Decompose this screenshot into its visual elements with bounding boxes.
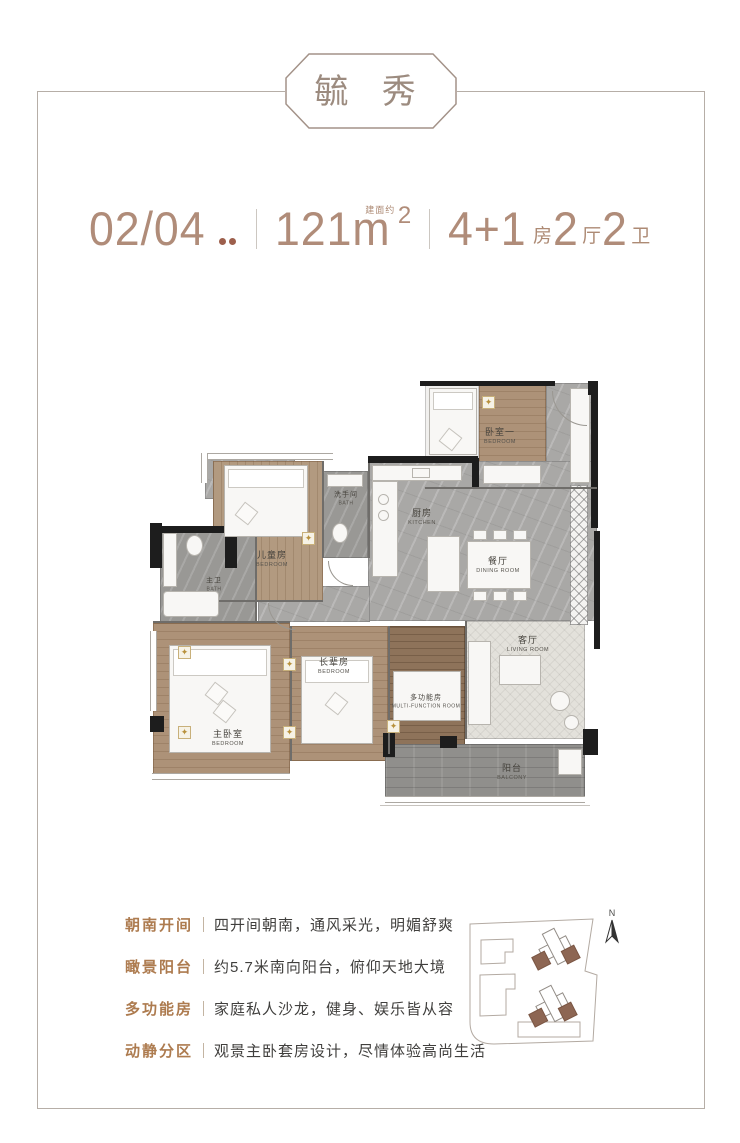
- door-arc: [328, 561, 353, 586]
- feature-label: 多功能房: [125, 998, 193, 1019]
- unit-number: 02/04: [89, 205, 205, 252]
- armchair-shape: [550, 691, 570, 711]
- dining-chair: [513, 591, 527, 601]
- partition-wall: [465, 621, 467, 739]
- feature-row: 多功能房 家庭私人沙龙，健身、娱乐皆从容: [125, 1000, 486, 1016]
- window-strip: [152, 773, 290, 780]
- wall-segment: [150, 716, 164, 732]
- balcony-floor: [385, 744, 585, 798]
- title-octagon: 毓 秀: [285, 53, 457, 129]
- feature-separator: [203, 917, 204, 932]
- room-label-kitchen: 厨房 KITCHEN: [408, 506, 436, 526]
- balcony-outer-line: [380, 805, 590, 806]
- feature-text: 观景主卧套房设计，尽情体验高尚生活: [214, 1040, 486, 1061]
- partition-wall: [290, 626, 292, 761]
- feature-row: 朝南开间 四开间朝南，通风采光，明媚舒爽: [125, 916, 486, 932]
- feature-text: 约5.7米南向阳台，俯仰天地大境: [214, 956, 446, 977]
- window-strip: [205, 453, 333, 460]
- toilet-shape: [186, 535, 203, 556]
- kitchen-island: [427, 536, 460, 592]
- room-label-master-bedroom: 主卧室 BEDROOM: [212, 727, 244, 747]
- area-superscript: 2: [398, 204, 411, 228]
- room-label-washroom: 洗手间 BATH: [334, 490, 358, 507]
- toilet-shape: [332, 523, 348, 543]
- unit-dots-icon: [219, 238, 236, 245]
- wall-segment: [368, 456, 478, 463]
- dining-chair: [493, 591, 507, 601]
- room-label-elder-room: 长辈房 BEDROOM: [318, 655, 350, 675]
- dot-icon: [229, 238, 236, 245]
- wall-segment: [440, 736, 457, 748]
- dining-chair: [473, 530, 487, 540]
- title-box: 毓 秀: [285, 53, 457, 129]
- site-plan: N: [460, 903, 630, 1051]
- washbasin-shape: [327, 474, 363, 487]
- dining-chair: [493, 530, 507, 540]
- gold-decor-icon: ✦: [283, 658, 296, 671]
- north-arrow-icon: [612, 920, 618, 942]
- feature-label: 动静分区: [125, 1040, 193, 1061]
- partition-wall: [213, 600, 323, 602]
- wall-segment: [420, 381, 555, 386]
- gold-decor-icon: ✦: [387, 720, 400, 733]
- area-note: 建面约: [365, 203, 395, 216]
- feature-separator: [203, 1001, 204, 1016]
- room-label-dining-room: 餐厅 DINING ROOM: [476, 554, 519, 574]
- unit-info-bar: 02/04 121m 2 建面约 4+1 房 2 厅 2 卫: [0, 204, 740, 252]
- rooms-unit: 房: [533, 221, 552, 248]
- partition-wall: [322, 461, 324, 558]
- sofa-shape: [468, 641, 491, 725]
- sink-shape: [412, 468, 430, 478]
- area-group: 121m 2 建面约: [275, 204, 411, 252]
- site-building-outline: [518, 1022, 580, 1037]
- shower-shape: [163, 591, 219, 617]
- dining-chair: [473, 591, 487, 601]
- wall-segment: [583, 729, 598, 755]
- dining-chair: [513, 530, 527, 540]
- gold-decor-icon: ✦: [178, 646, 191, 659]
- site-plan-svg: N: [460, 903, 630, 1051]
- gold-decor-icon: ✦: [302, 532, 315, 545]
- room-label-multifunction-room: 多功能房 MULTI-FUNCTION ROOM: [392, 693, 461, 710]
- room-label-master-bath: 主卫 BATH: [206, 576, 222, 593]
- partition-wall: [388, 626, 390, 754]
- north-arrow-icon: [606, 920, 612, 942]
- feature-separator: [203, 1043, 204, 1058]
- partition-wall: [425, 487, 597, 489]
- vanity-shape: [163, 533, 177, 587]
- ac-unit-shape: [558, 749, 582, 775]
- north-label: N: [609, 908, 616, 918]
- feature-list: 朝南开间 四开间朝南，通风采光，明媚舒爽 瞰景阳台 约5.7米南向阳台，俯仰天地…: [125, 916, 486, 1058]
- room-count-group: 4+1 房 2 厅 2 卫: [448, 205, 651, 252]
- wall-segment: [472, 458, 479, 488]
- rooms-count: 4+1: [448, 205, 527, 252]
- room-label-balcony: 阳台 BALCONY: [497, 761, 527, 781]
- gold-decor-icon: ✦: [178, 726, 191, 739]
- feature-label: 瞰景阳台: [125, 956, 193, 977]
- feature-label: 朝南开间: [125, 914, 193, 935]
- window-strip: [201, 453, 208, 483]
- wall-segment: [155, 526, 235, 533]
- window-strip: [150, 631, 157, 711]
- balcony-railing: [385, 796, 585, 803]
- flyer-page: { "title": { "text": "毓 秀" }, "header": …: [0, 0, 740, 1143]
- wall-segment: [591, 393, 598, 528]
- feature-row: 动静分区 观景主卧套房设计，尽情体验高尚生活: [125, 1042, 486, 1058]
- bed-shape: [224, 465, 308, 537]
- feature-text: 四开间朝南，通风采光，明媚舒爽: [214, 914, 454, 935]
- header-divider: [256, 209, 257, 249]
- feature-separator: [203, 959, 204, 974]
- room-label-living-room: 客厅 LIVING ROOM: [507, 633, 549, 653]
- gold-decor-icon: ✦: [283, 726, 296, 739]
- halls-unit: 厅: [582, 221, 601, 248]
- dresser-shape: [483, 465, 541, 484]
- header-divider: [429, 209, 430, 249]
- stove-burner-icon: [378, 510, 389, 521]
- floor-plan: ✦ ✦ ✦ ✦ ✦ ✦ ✦ 卧室一 BEDROOM 洗手间 BATH 儿童房 B…: [150, 373, 600, 831]
- plant-shape: [564, 715, 579, 730]
- partition-wall: [255, 528, 257, 622]
- stove-burner-icon: [378, 494, 389, 505]
- feature-row: 瞰景阳台 约5.7米南向阳台，俯仰天地大境: [125, 958, 486, 974]
- wall-segment: [594, 531, 600, 649]
- partition-wall: [153, 621, 290, 623]
- feature-text: 家庭私人沙龙，健身、娱乐皆从容: [214, 998, 454, 1019]
- halls-count: 2: [553, 205, 579, 252]
- partition-wall: [368, 463, 370, 558]
- dot-icon: [219, 238, 226, 245]
- room-label-bedroom1: 卧室一 BEDROOM: [484, 425, 516, 445]
- page-title: 毓 秀: [314, 73, 427, 111]
- coffee-table: [499, 655, 541, 685]
- gold-decor-icon: ✦: [482, 396, 495, 409]
- room-label-children-room: 儿童房 BEDROOM: [256, 548, 288, 568]
- baths-unit: 卫: [631, 221, 650, 248]
- window-mullion-strip: [570, 485, 588, 625]
- baths-count: 2: [602, 205, 628, 252]
